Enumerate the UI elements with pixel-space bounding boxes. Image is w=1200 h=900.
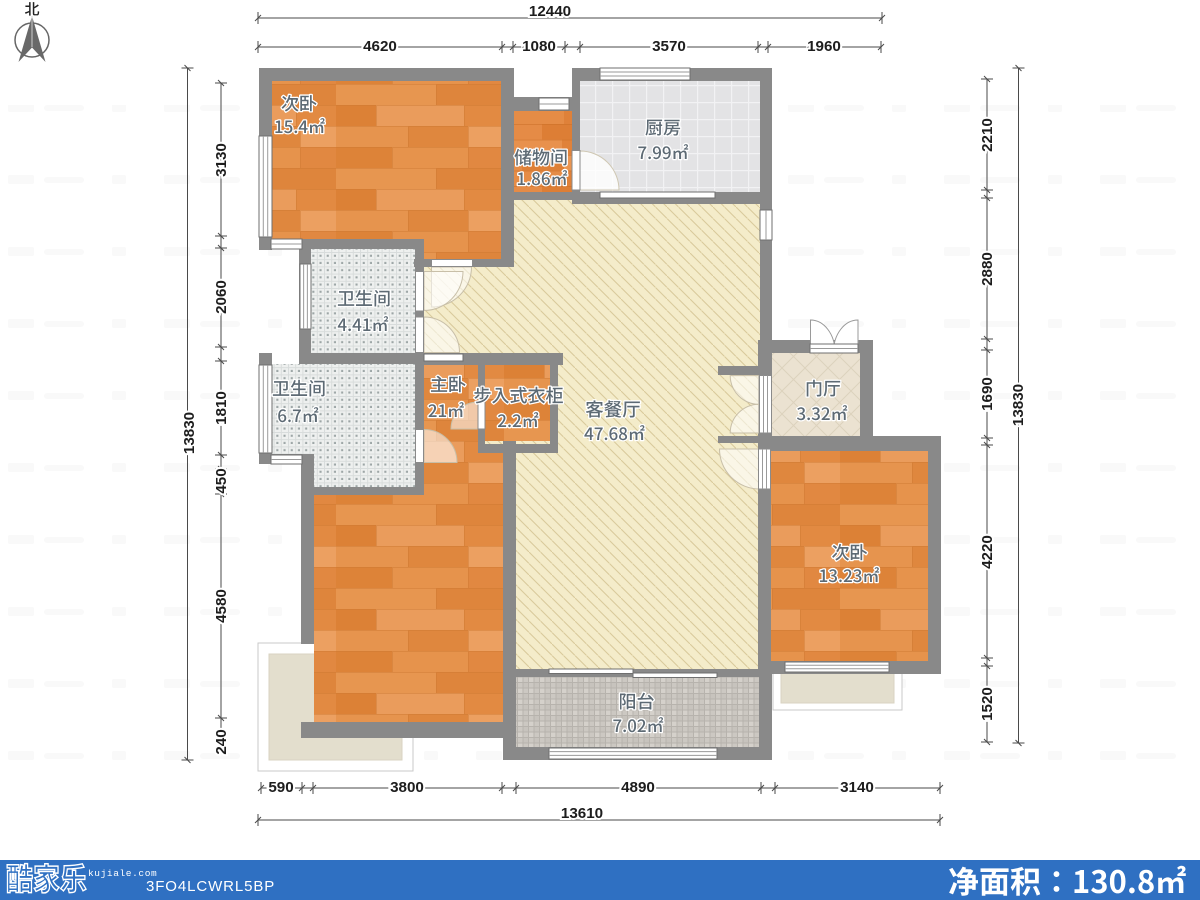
svg-text:1080: 1080 <box>522 38 556 55</box>
svg-text:3140: 3140 <box>840 779 874 796</box>
svg-text:3800: 3800 <box>390 779 424 796</box>
svg-text:1960: 1960 <box>807 38 841 55</box>
svg-text:450: 450 <box>213 468 230 493</box>
svg-text:240: 240 <box>213 729 230 754</box>
svg-text:2210: 2210 <box>979 118 996 152</box>
svg-text:590: 590 <box>268 779 293 796</box>
svg-text:1520: 1520 <box>979 687 996 721</box>
svg-text:4580: 4580 <box>213 589 230 623</box>
svg-text:13830: 13830 <box>181 412 198 454</box>
svg-text:1690: 1690 <box>979 377 996 411</box>
svg-text:3FO4LCWRL5BP: 3FO4LCWRL5BP <box>146 878 275 895</box>
svg-text:3130: 3130 <box>213 143 230 177</box>
svg-text:2880: 2880 <box>979 252 996 286</box>
svg-text:1810: 1810 <box>213 391 230 425</box>
svg-text:4890: 4890 <box>621 779 655 796</box>
svg-text:4220: 4220 <box>979 535 996 569</box>
svg-text:4620: 4620 <box>363 38 397 55</box>
svg-text:2060: 2060 <box>213 280 230 314</box>
svg-text:3570: 3570 <box>652 38 686 55</box>
svg-text:13610: 13610 <box>561 805 603 822</box>
svg-text:13830: 13830 <box>1010 384 1027 426</box>
svg-text:12440: 12440 <box>529 3 571 20</box>
